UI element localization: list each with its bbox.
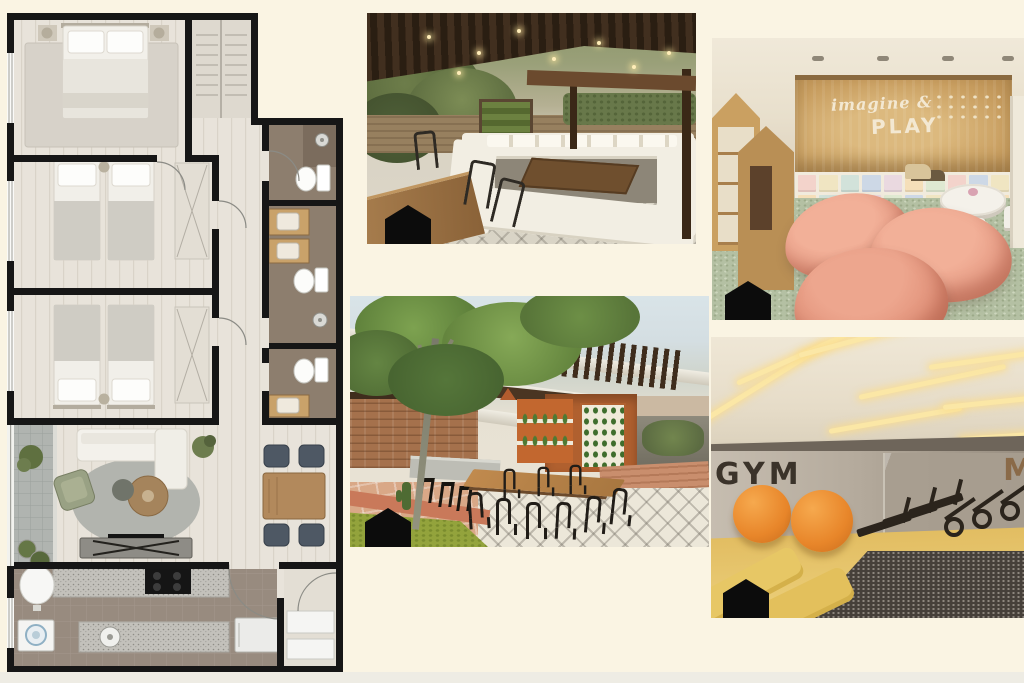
downlight [877,56,889,61]
downlight [1002,56,1014,61]
cubby-bin [884,175,902,192]
downlight [812,56,824,61]
kids-playroom-photo: imagine & PLAY [712,38,1024,320]
string-light [632,65,636,69]
shelf-plants [520,408,570,454]
cubby-bin [862,175,880,192]
bottom-margin [0,672,1024,683]
string-light [667,51,671,55]
string-light [427,35,431,39]
exercise-ball [791,490,853,552]
downlight [942,56,954,61]
tree-foliage [388,344,504,416]
wood-feature-wall: imagine & PLAY [795,75,1012,172]
black-metal-chair [570,465,582,486]
black-metal-chair [496,498,511,524]
floor-plan-drawing [7,13,343,673]
floor-plan-image [7,13,343,673]
black-metal-chair [555,502,571,529]
pergola-post [570,77,577,149]
sofa-cushions [487,135,677,147]
black-metal-chair [526,502,541,528]
pergola-post [682,69,691,239]
metal-chair [413,130,439,170]
black-metal-chair [585,495,602,522]
black-metal-chair [538,467,550,488]
hanging-garland [933,92,1003,120]
cubby-bin [819,175,837,192]
exercise-ball [733,485,791,543]
hedge [563,93,696,125]
string-light [457,71,461,75]
bedroom-2 [53,157,209,260]
bedroom-3 [53,305,209,409]
black-metal-chair [611,487,629,514]
playroom-sign-script: imagine & [831,92,933,115]
gym-photo: GYM M [711,337,1024,618]
toy-car [905,164,931,179]
courtyard-patio-photo [350,296,709,547]
house-shelf [738,126,794,290]
vertical-garden [580,403,626,469]
black-metal-chair [504,469,516,490]
string-light [552,57,556,61]
cubby-bin [841,175,859,192]
door-frame [1010,96,1024,248]
playhouse-door [750,166,772,230]
black-metal-chair [467,492,484,519]
table-flowers [968,188,978,196]
terrace-lounge-photo [367,13,696,244]
pavilion-greenery [642,420,704,456]
string-light [517,29,521,33]
string-light [597,41,601,45]
string-light [477,51,481,55]
cactus [402,482,411,510]
playroom-sign-caps: PLAY [871,113,939,139]
listing-collage: imagine & PLAY [0,0,1024,683]
cubby-bin [798,175,816,192]
